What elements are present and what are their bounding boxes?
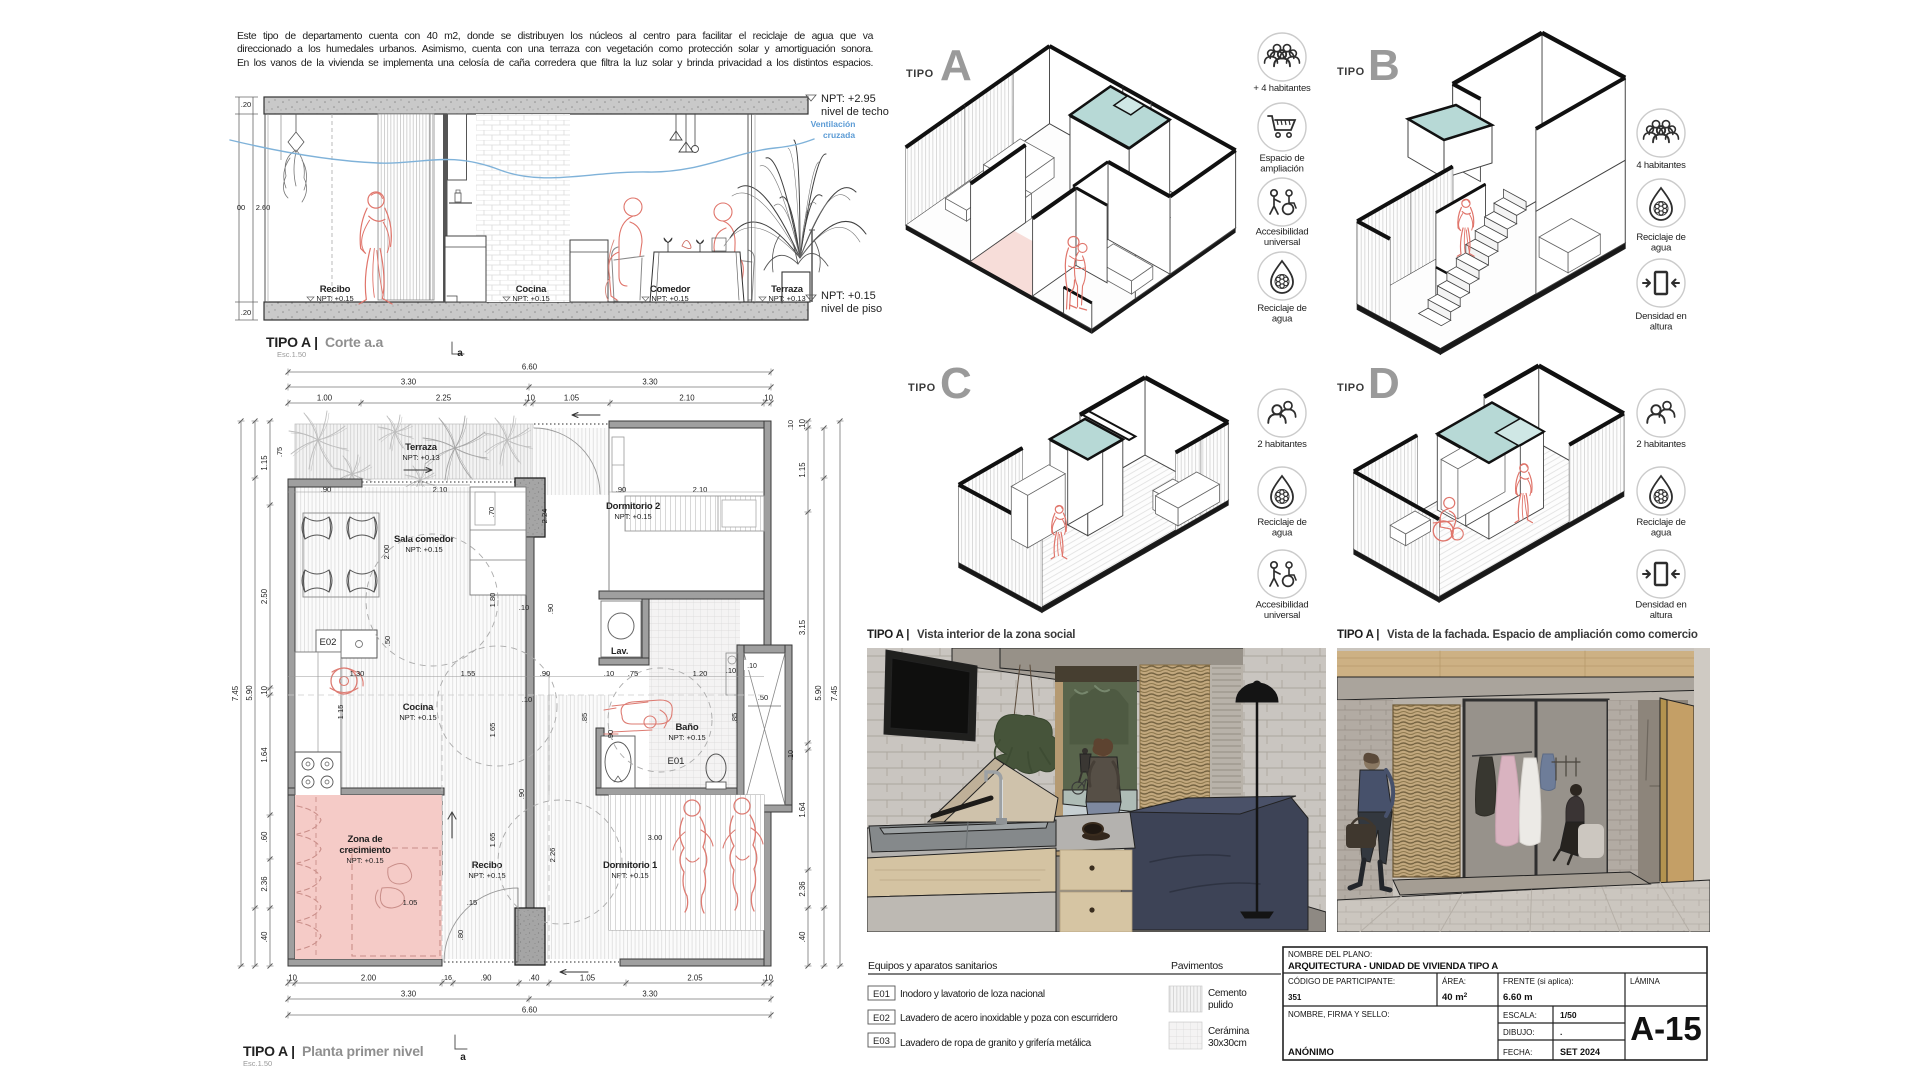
svg-text:1.15: 1.15: [260, 455, 269, 471]
svg-text:Zona de: Zona de: [347, 834, 382, 845]
svg-text:2 habitantes: 2 habitantes: [1257, 439, 1307, 450]
svg-text:.: .: [1560, 1027, 1562, 1037]
svg-text:E02: E02: [873, 1013, 890, 1024]
svg-text:NPT: +0.15: NPT: +0.15: [346, 856, 383, 865]
svg-text:.10: .10: [762, 394, 774, 403]
svg-text:.10: .10: [786, 750, 795, 760]
svg-text:TIPO: TIPO: [1337, 66, 1365, 78]
svg-text:E01: E01: [873, 989, 890, 1000]
svg-text:Accesibilidad: Accesibilidad: [1256, 227, 1309, 238]
svg-text:2.00: 2.00: [382, 545, 391, 560]
svg-text:6.60: 6.60: [522, 1006, 538, 1015]
svg-text:ANÓNIMO: ANÓNIMO: [1288, 1046, 1334, 1058]
svg-text:A-15: A-15: [1630, 1010, 1702, 1047]
svg-text:6.60 m: 6.60 m: [1503, 992, 1533, 1003]
svg-text:Dormitorio 2: Dormitorio 2: [606, 501, 660, 512]
svg-text:.90: .90: [546, 604, 555, 615]
svg-text:D: D: [1368, 359, 1400, 408]
svg-text:Dormitorio 1: Dormitorio 1: [603, 860, 658, 871]
svg-text:TIPO A |: TIPO A |: [1337, 629, 1379, 641]
svg-text:.10: .10: [726, 666, 737, 675]
svg-text:SET 2024: SET 2024: [1560, 1047, 1600, 1057]
svg-text:4 habitantes: 4 habitantes: [1636, 160, 1686, 171]
svg-text:2.26: 2.26: [548, 848, 557, 863]
svg-text:TIPO A |: TIPO A |: [243, 1043, 295, 1059]
svg-text:1.05: 1.05: [403, 898, 418, 907]
svg-text:.90: .90: [606, 730, 615, 741]
svg-text:TIPO: TIPO: [908, 382, 936, 394]
svg-text:NOMBRE DEL PLANO:: NOMBRE DEL PLANO:: [1288, 950, 1372, 959]
svg-text:30x30cm: 30x30cm: [1208, 1038, 1246, 1049]
svg-text:2 habitantes: 2 habitantes: [1636, 439, 1686, 450]
svg-text:.85: .85: [730, 713, 739, 724]
svg-text:pulido: pulido: [1208, 1000, 1234, 1011]
svg-text:Lavadero de acero inoxidable y: Lavadero de acero inoxidable y poza con …: [900, 1013, 1118, 1024]
svg-text:NPT: +0.13: NPT: +0.13: [402, 453, 439, 462]
svg-text:.10: .10: [524, 394, 536, 403]
svg-text:7.45: 7.45: [830, 685, 839, 701]
svg-text:.10: .10: [286, 974, 298, 983]
svg-text:NPT: +0.15: NPT: +0.15: [651, 294, 688, 303]
svg-text:3.30: 3.30: [401, 990, 417, 999]
svg-text:2.00: 2.00: [361, 974, 377, 983]
svg-text:3.30: 3.30: [642, 990, 658, 999]
svg-text:.10: .10: [519, 603, 530, 612]
svg-text:.10: .10: [522, 695, 533, 704]
svg-text:.20: .20: [241, 308, 251, 317]
svg-text:a: a: [457, 348, 463, 359]
svg-text:NPT: +0.15: NPT: +0.15: [614, 512, 651, 521]
svg-text:NPT: +0.15: NPT: +0.15: [611, 871, 648, 880]
svg-text:2.05: 2.05: [687, 974, 703, 983]
svg-text:.90: .90: [481, 974, 493, 983]
svg-text:2.36: 2.36: [260, 876, 269, 891]
svg-text:Ventilación: Ventilación: [811, 119, 856, 129]
svg-text:.10: .10: [786, 420, 795, 430]
svg-text:2.36: 2.36: [798, 881, 807, 896]
svg-text:1.15: 1.15: [336, 705, 345, 720]
svg-text:Baño: Baño: [676, 722, 699, 733]
svg-text:ampliación: ampliación: [1260, 164, 1303, 175]
svg-text:1.80: 1.80: [488, 593, 497, 608]
svg-text:a: a: [460, 1052, 466, 1063]
svg-text:2.25: 2.25: [436, 394, 452, 403]
svg-text:351: 351: [1288, 993, 1302, 1002]
svg-text:Pavimentos: Pavimentos: [1171, 960, 1223, 972]
svg-text:.20: .20: [241, 100, 251, 109]
svg-text:altura: altura: [1650, 610, 1673, 621]
svg-text:ÁREA:: ÁREA:: [1442, 977, 1466, 986]
svg-text:1.05: 1.05: [564, 394, 580, 403]
svg-text:2.24: 2.24: [540, 509, 549, 524]
svg-text:2.10: 2.10: [693, 485, 708, 494]
svg-text:crecimiento: crecimiento: [339, 845, 391, 856]
svg-text:7.45: 7.45: [231, 685, 240, 701]
svg-text:Espacio de: Espacio de: [1259, 153, 1304, 164]
svg-text:.85: .85: [580, 713, 589, 724]
svg-text:universal: universal: [1264, 237, 1300, 248]
svg-text:Densidad en: Densidad en: [1635, 600, 1686, 611]
svg-text:altura: altura: [1650, 322, 1673, 333]
svg-text:1.05: 1.05: [580, 974, 596, 983]
svg-text:Cemento: Cemento: [1208, 988, 1247, 999]
svg-text:Inodoro y lavatorio de loza na: Inodoro y lavatorio de loza nacional: [900, 989, 1045, 1000]
svg-text:.80: .80: [456, 930, 465, 941]
svg-text:NPT: +0.15: NPT: +0.15: [821, 290, 876, 302]
svg-text:agua: agua: [1272, 314, 1293, 325]
svg-text:Vista de la fachada. Espacio d: Vista de la fachada. Espacio de ampliaci…: [1387, 629, 1698, 641]
svg-text:1.64: 1.64: [260, 747, 269, 763]
svg-text:Reciclaje de: Reciclaje de: [1257, 303, 1306, 314]
svg-text:TIPO A |: TIPO A |: [266, 334, 318, 350]
svg-text:1.00: 1.00: [317, 394, 333, 403]
svg-text:.50: .50: [383, 636, 392, 647]
svg-text:.90: .90: [321, 485, 332, 494]
svg-text:agua: agua: [1651, 243, 1672, 254]
svg-text:.40: .40: [260, 931, 269, 943]
svg-text:NPT: +0.15: NPT: +0.15: [399, 713, 436, 722]
svg-text:+ 4 habitantes: + 4 habitantes: [1253, 83, 1311, 94]
svg-text:1.15: 1.15: [798, 462, 807, 478]
svg-text:Terraza: Terraza: [405, 442, 438, 453]
svg-text:3.30: 3.30: [642, 378, 658, 387]
svg-text:NPT: +0.15: NPT: +0.15: [405, 545, 442, 554]
svg-text:TIPO: TIPO: [1337, 382, 1365, 394]
svg-text:Reciclaje de: Reciclaje de: [1636, 517, 1685, 528]
svg-text:Planta primer nivel: Planta primer nivel: [302, 1043, 423, 1059]
svg-text:B: B: [1368, 41, 1400, 90]
svg-text:NPT: +0.13: NPT: +0.13: [768, 294, 805, 303]
svg-text:.90: .90: [517, 789, 526, 800]
svg-text:NPT: +0.15: NPT: +0.15: [512, 294, 549, 303]
svg-text:NPT: +0.15: NPT: +0.15: [668, 733, 705, 742]
svg-text:Equipos y aparatos sanitarios: Equipos y aparatos sanitarios: [868, 960, 997, 972]
svg-text:Esc.1.50: Esc.1.50: [277, 350, 306, 359]
svg-text:.10: .10: [762, 974, 774, 983]
svg-text:.40: .40: [798, 931, 807, 943]
svg-text:Lavadero de ropa de granito y: Lavadero de ropa de granito y grifería m…: [900, 1038, 1092, 1049]
svg-text:nivel de techo: nivel de techo: [821, 106, 889, 118]
svg-text:1.65: 1.65: [488, 723, 497, 738]
svg-text:E03: E03: [873, 1036, 890, 1047]
svg-text:.16: .16: [442, 973, 452, 982]
svg-text:2.10: 2.10: [679, 394, 695, 403]
svg-text:agua: agua: [1272, 528, 1293, 539]
svg-text:NOMBRE, FIRMA Y SELLO:: NOMBRE, FIRMA Y SELLO:: [1288, 1010, 1390, 1019]
svg-text:.50: .50: [758, 693, 768, 702]
svg-text:.40: .40: [529, 974, 541, 983]
svg-text:Cerámina: Cerámina: [1208, 1026, 1250, 1037]
svg-text:CÓDIGO DE PARTICIPANTE:: CÓDIGO DE PARTICIPANTE:: [1288, 977, 1395, 986]
svg-text:.10: .10: [260, 685, 269, 697]
svg-text:Cocina: Cocina: [403, 702, 434, 713]
svg-text:TIPO A |: TIPO A |: [867, 629, 909, 641]
svg-text:1.64: 1.64: [798, 802, 807, 818]
svg-text:5.90: 5.90: [245, 685, 254, 701]
svg-text:Vista interior de la zona soci: Vista interior de la zona social: [917, 629, 1075, 641]
svg-text:Densidad en: Densidad en: [1635, 311, 1686, 322]
svg-text:ESCALA:: ESCALA:: [1503, 1011, 1537, 1020]
svg-text:3.15: 3.15: [798, 619, 807, 635]
svg-text:C: C: [940, 359, 972, 408]
svg-text:3.00: 3.00: [648, 833, 663, 842]
svg-text:A: A: [940, 41, 972, 90]
svg-text:.75: .75: [275, 447, 284, 457]
svg-text:.90: .90: [616, 485, 627, 494]
svg-text:Reciclaje de: Reciclaje de: [1257, 517, 1306, 528]
svg-text:.60: .60: [260, 831, 269, 843]
svg-text:nivel de piso: nivel de piso: [821, 303, 882, 315]
svg-text:.15: .15: [467, 898, 478, 907]
svg-text:.70: .70: [487, 507, 496, 518]
svg-text:Lav.: Lav.: [611, 646, 628, 656]
svg-text:ARQUITECTURA - UNIDAD DE VIVIE: ARQUITECTURA - UNIDAD DE VIVIENDA TIPO A: [1288, 961, 1498, 972]
svg-text:5.90: 5.90: [814, 685, 823, 701]
svg-text:NPT: +2.95: NPT: +2.95: [821, 93, 876, 105]
svg-text:3.30: 3.30: [401, 378, 417, 387]
svg-text:2.10: 2.10: [433, 485, 448, 494]
svg-text:00: 00: [237, 203, 245, 212]
svg-text:1.65: 1.65: [488, 833, 497, 848]
svg-text:FECHA:: FECHA:: [1503, 1048, 1532, 1057]
svg-text:FRENTE (si aplica):: FRENTE (si aplica):: [1503, 977, 1574, 986]
svg-text:cruzada: cruzada: [823, 130, 855, 140]
svg-text:NPT: +0.15: NPT: +0.15: [316, 294, 353, 303]
svg-text:DIBUJO:: DIBUJO:: [1503, 1028, 1535, 1037]
svg-text:E01: E01: [668, 756, 685, 767]
svg-text:Reciclaje de: Reciclaje de: [1636, 232, 1685, 243]
svg-text:Esc.1.50: Esc.1.50: [243, 1059, 272, 1068]
svg-text:.10: .10: [747, 663, 757, 670]
svg-text:6.60: 6.60: [522, 363, 538, 372]
svg-text:Accesibilidad: Accesibilidad: [1256, 600, 1309, 611]
svg-text:1/50: 1/50: [1560, 1010, 1577, 1020]
svg-text:universal: universal: [1264, 610, 1300, 621]
svg-text:E02: E02: [320, 637, 337, 648]
svg-text:LÁMINA: LÁMINA: [1630, 977, 1660, 986]
svg-text:.10: .10: [798, 418, 807, 430]
svg-text:Corte a.a: Corte a.a: [325, 334, 384, 350]
svg-text:2.50: 2.50: [260, 588, 269, 604]
svg-text:TIPO: TIPO: [906, 68, 934, 80]
svg-text:agua: agua: [1651, 528, 1672, 539]
